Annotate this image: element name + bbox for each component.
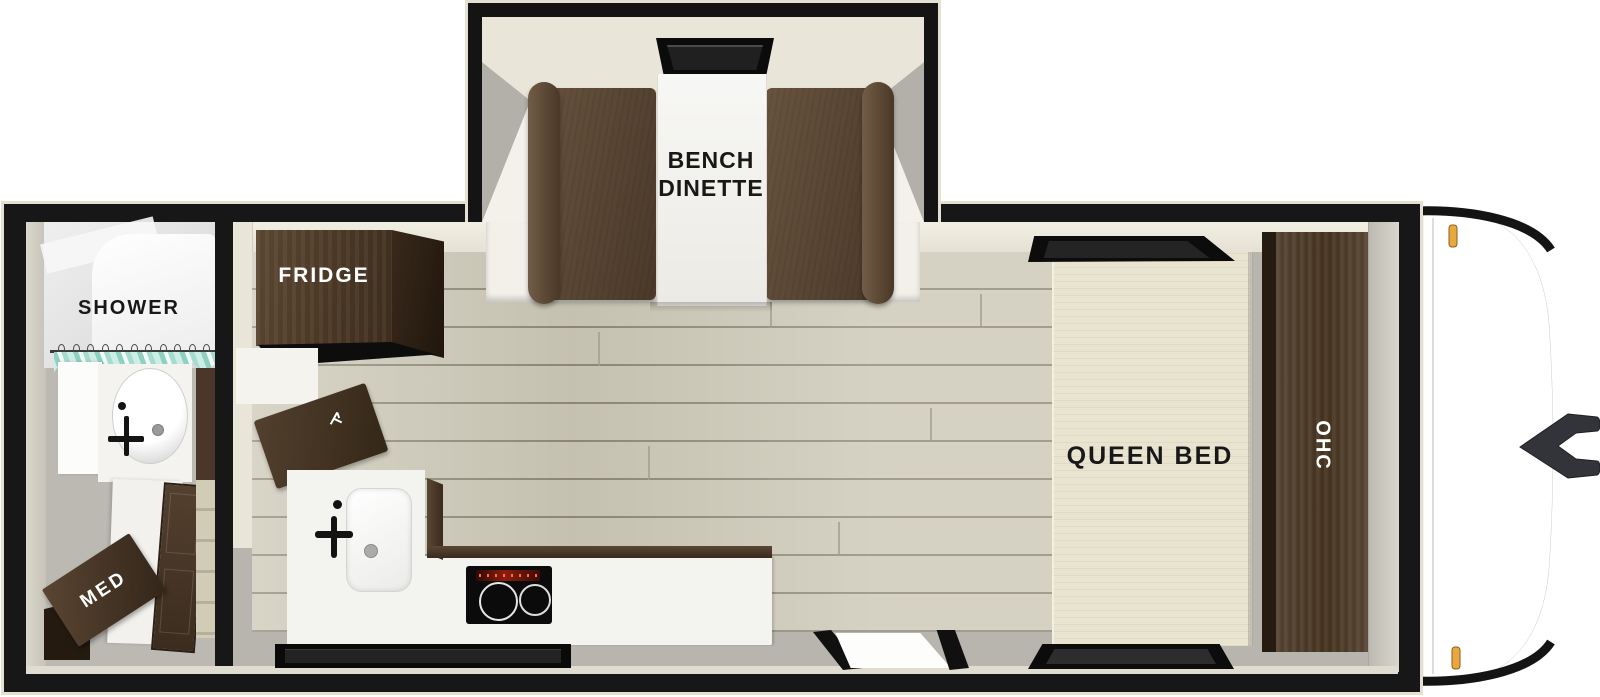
plank-joint (648, 446, 650, 480)
burner-icon (479, 582, 518, 621)
marker-light-top (1449, 225, 1457, 247)
plank-joint (838, 522, 840, 556)
bedroom-head-window (1028, 236, 1235, 262)
bathroom-partition-wall (215, 204, 233, 692)
shower-curtain-rings (58, 344, 210, 353)
kitchen-sink (346, 488, 412, 592)
ohc-label-text: OHC (1310, 420, 1333, 470)
ohc-cabinet-edge (1262, 232, 1276, 652)
bench-dinette-label: BENCH DINETTE (630, 146, 792, 202)
queen-bed-label: QUEEN BED (1052, 442, 1248, 471)
shower-label: SHOWER (54, 297, 204, 320)
bathroom-wall-panel (58, 362, 102, 474)
kitchen-faucet-handle-icon (315, 531, 353, 538)
cooktop-control-panel (476, 570, 540, 581)
bathroom-faucet-spout-icon (118, 402, 126, 410)
kitchen-sink-drain (364, 544, 378, 558)
dinette-backrest-right (862, 82, 894, 304)
bathroom-cabinet-panel (196, 368, 215, 480)
burner-icon (519, 584, 551, 616)
bathroom-sink-drain (152, 424, 164, 436)
door-panel (166, 493, 201, 555)
dinette-window (656, 38, 774, 78)
slideout-wall-top (468, 3, 938, 17)
dinette-table-shadow (650, 302, 772, 312)
flip-counter-icon (322, 405, 350, 433)
plank-joint (930, 408, 932, 442)
floorplan-scene: SHOWER MED FRIDGE (0, 0, 1600, 697)
slideout-wall-left (468, 3, 482, 222)
slideout-wall-right (924, 3, 938, 222)
counter-backsplash-horizontal (427, 546, 772, 558)
bed-shadow (1248, 252, 1254, 646)
dinette-backrest-left (528, 82, 560, 304)
trailer-front-cap (1400, 198, 1600, 696)
marker-light-bottom (1452, 647, 1460, 669)
fridge-cabinet (256, 230, 392, 346)
med-label: MED (77, 567, 132, 613)
bathroom-tall-cabinet (196, 480, 215, 638)
plank-joint (598, 332, 600, 366)
fridge-label: FRIDGE (256, 264, 392, 288)
front-interior-wall (1368, 222, 1399, 672)
door-panel (159, 569, 194, 635)
fridge-cabinet-side (392, 230, 444, 358)
kitchen-window (275, 644, 571, 668)
plank-joint (980, 294, 982, 328)
cooktop (466, 566, 552, 624)
fridge-side-wall (236, 348, 318, 404)
kitchen-faucet-spout-icon (333, 500, 342, 509)
ohc-label: OHC (1276, 423, 1368, 467)
bedroom-foot-window (1028, 644, 1234, 669)
bathroom-left-wall (26, 222, 46, 672)
bathroom-faucet-handle-icon (108, 436, 144, 442)
